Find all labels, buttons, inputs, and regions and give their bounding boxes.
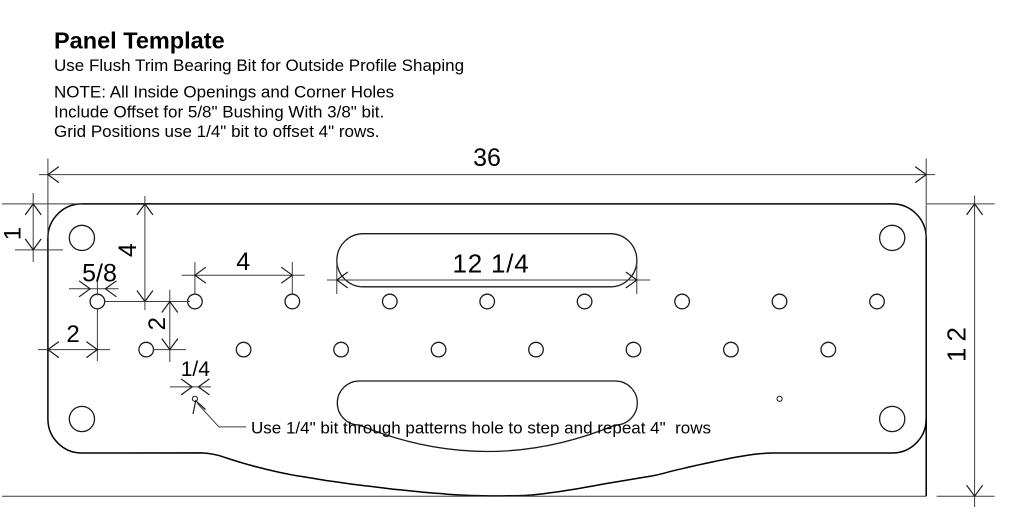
svg-text:Include Offset for 5/8" Bushin: Include Offset for 5/8" Bushing With 3/8… xyxy=(54,103,384,122)
svg-text:Use Flush Trim Bearing Bit for: Use Flush Trim Bearing Bit for Outside P… xyxy=(54,56,464,75)
svg-text:5/8: 5/8 xyxy=(82,260,117,288)
svg-text:2: 2 xyxy=(66,321,79,348)
svg-text:Use 1/4" bit through patterns: Use 1/4" bit through patterns hole to st… xyxy=(251,419,711,438)
svg-text:4: 4 xyxy=(236,248,250,276)
svg-text:NOTE: All Inside Openings and: NOTE: All Inside Openings and Corner Hol… xyxy=(54,83,394,102)
svg-text:1: 1 xyxy=(0,227,27,240)
svg-text:Panel Template: Panel Template xyxy=(54,28,225,54)
svg-text:12 1/4: 12 1/4 xyxy=(452,249,529,279)
svg-text:Grid Positions use 1/4" bit to: Grid Positions use 1/4" bit to offset 4"… xyxy=(54,122,379,141)
svg-text:2: 2 xyxy=(144,317,171,330)
svg-text:36: 36 xyxy=(473,144,501,172)
svg-text:12: 12 xyxy=(941,321,971,362)
svg-text:1/4: 1/4 xyxy=(181,358,211,381)
svg-text:4: 4 xyxy=(114,243,142,257)
